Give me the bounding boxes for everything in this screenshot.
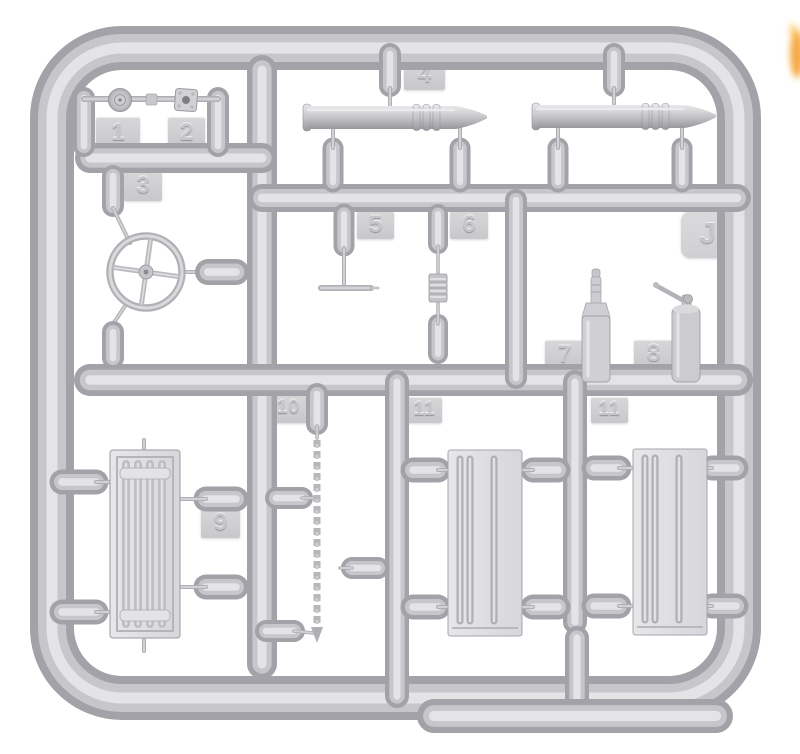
part-4-shell-copy [532, 103, 716, 130]
chain-end-hook [311, 627, 323, 643]
part-10-chain [311, 440, 323, 643]
part-2-square-flange [174, 88, 197, 111]
part-3-steering-wheel [110, 236, 182, 308]
part-6-ribbed-coupler [429, 274, 447, 302]
part-1-round-knob [109, 89, 132, 112]
orange-object-edge [789, 23, 800, 78]
part-9-radiator [110, 450, 180, 638]
sprue-frame-drawing [0, 0, 800, 754]
sprue-photo: 1 2 3 4 5 6 7 8 9 10 11 11 Jf [0, 0, 800, 754]
part-4-shell [303, 104, 487, 131]
part-11-panel [448, 450, 522, 636]
link-wheel-bottom [113, 303, 127, 324]
part-7-bottle [582, 269, 610, 382]
part-11-panel-copy [633, 449, 707, 635]
part-bar-collar [146, 94, 157, 105]
link-chain-bottom [294, 631, 313, 633]
